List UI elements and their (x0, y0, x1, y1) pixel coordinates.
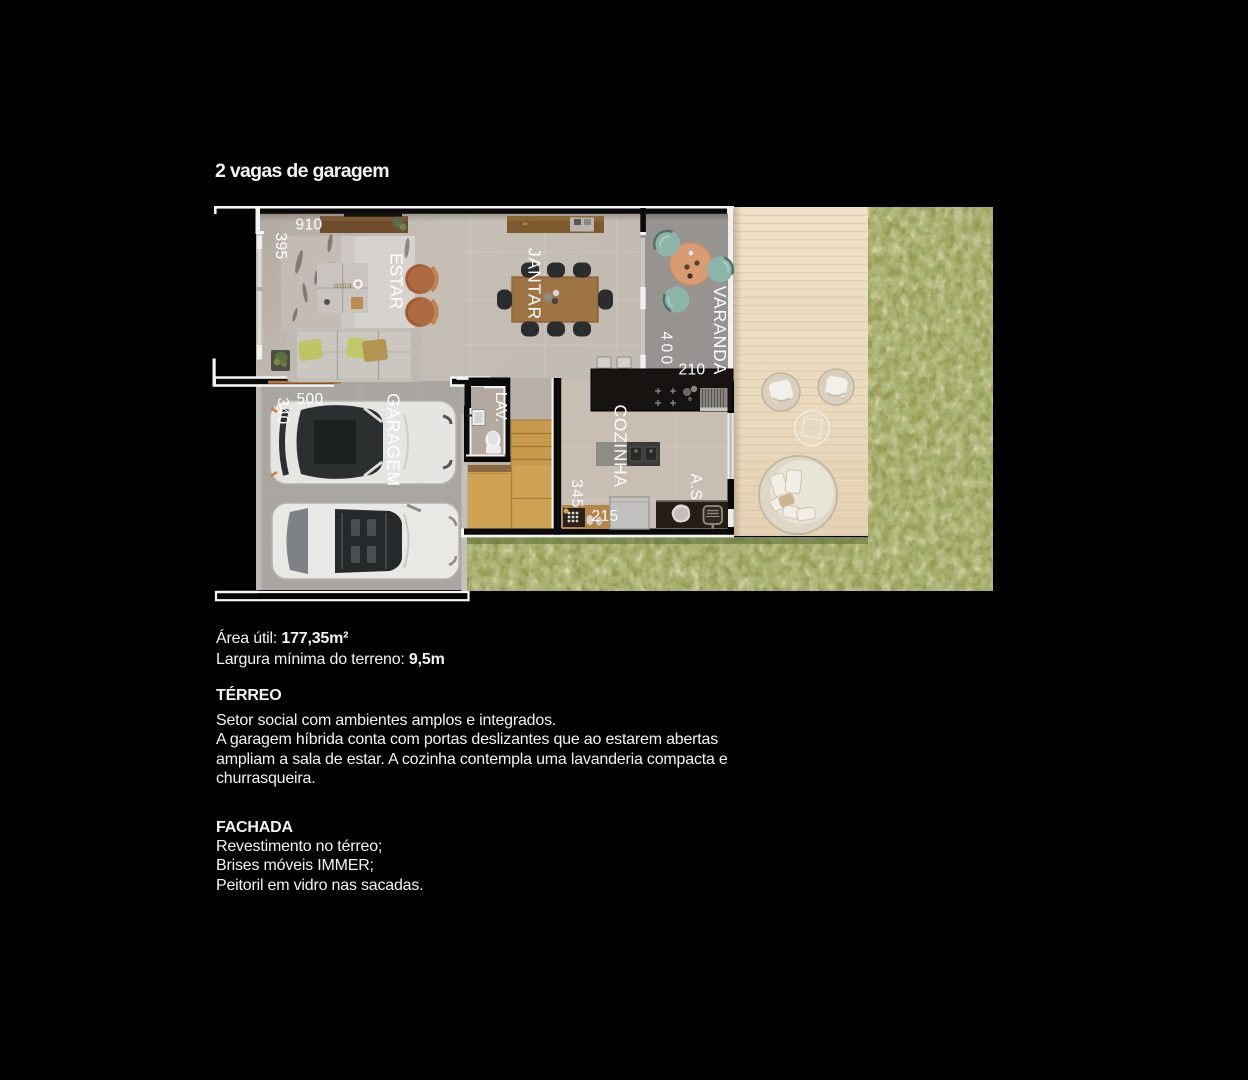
svg-text:210: 210 (678, 362, 705, 379)
svg-text:GARAGEM: GARAGEM (384, 393, 404, 487)
svg-text:215: 215 (591, 508, 618, 525)
svg-text:500: 500 (296, 391, 323, 408)
svg-text:astra: astra (334, 281, 352, 290)
svg-text:340: 340 (274, 397, 291, 424)
svg-text:JANTAR: JANTAR (525, 248, 545, 320)
svg-text:345: 345 (568, 479, 585, 508)
svg-text:ESTAR: ESTAR (387, 253, 407, 309)
svg-text:A.S: A.S (687, 474, 704, 501)
svg-text:VARANDA: VARANDA (710, 286, 730, 376)
svg-text:910: 910 (295, 217, 322, 234)
svg-text:COZINHA: COZINHA (611, 405, 631, 488)
svg-text:395: 395 (272, 232, 289, 259)
svg-text:LAV.: LAV. (492, 392, 509, 422)
svg-text:400: 400 (658, 331, 675, 367)
